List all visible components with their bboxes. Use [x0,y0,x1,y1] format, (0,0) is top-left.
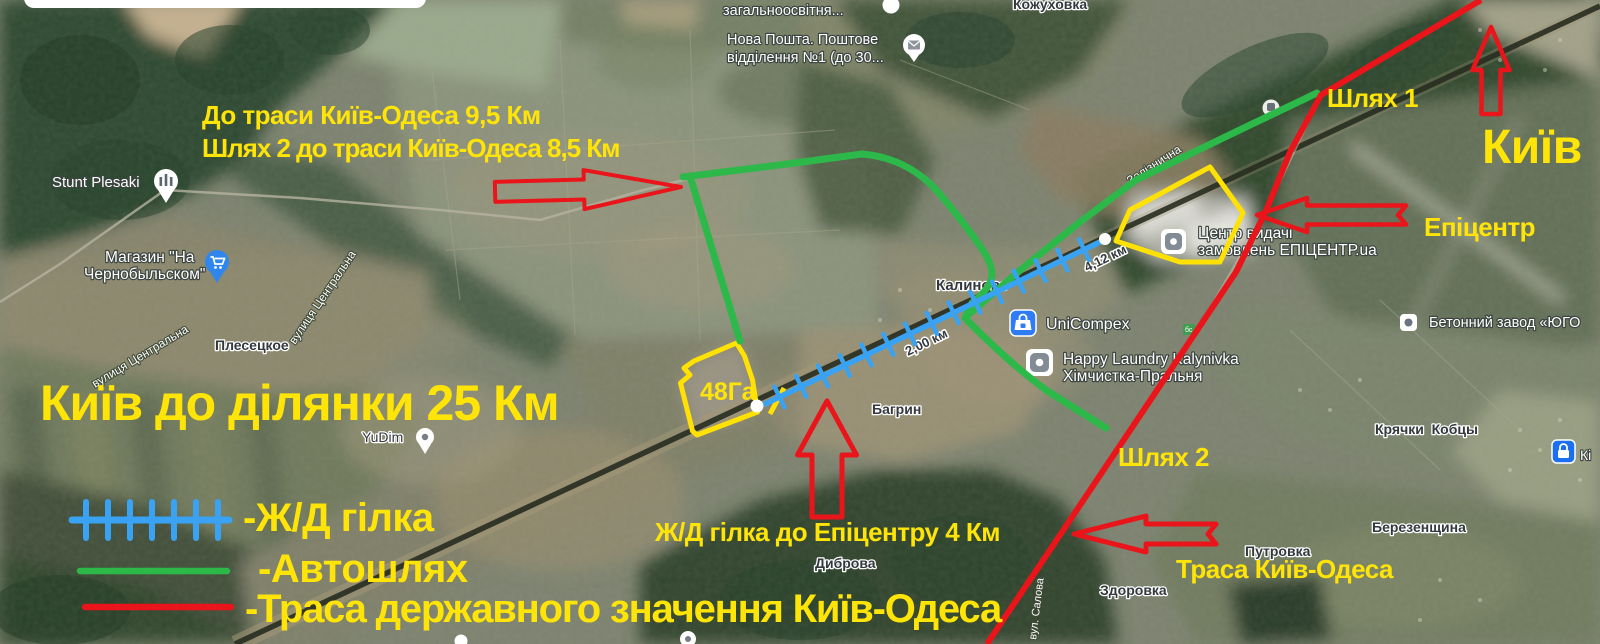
svg-text:відділення №1 (до 30...: відділення №1 (до 30... [727,50,884,66]
svg-text:Здоровка: Здоровка [1100,582,1167,598]
svg-text:Березенщина: Березенщина [1372,519,1466,535]
svg-text:До траси Київ-Одеса 9,5 Км: До траси Київ-Одеса 9,5 Км [202,100,541,130]
svg-text:Кожуховка: Кожуховка [1013,0,1087,12]
svg-text:Магазин "На: Магазин "На [105,249,195,266]
svg-text:Центр видачі: Центр видачі [1198,225,1292,242]
svg-text:бс: бс [1185,326,1193,334]
svg-text:Епіцентр: Епіцентр [1424,212,1535,242]
svg-text:загальноосвітня...: загальноосвітня... [723,3,844,19]
svg-text:Шлях 2: Шлях 2 [1118,442,1209,472]
svg-text:-Ж/Д гілка: -Ж/Д гілка [243,496,435,540]
svg-text:Happy Laundry Kalynivka: Happy Laundry Kalynivka [1063,351,1239,368]
svg-text:Нова Пошта. Поштове: Нова Пошта. Поштове [727,32,878,48]
svg-text:YuDim: YuDim [362,429,403,445]
svg-text:Траса Київ-Одеса: Траса Київ-Одеса [1176,554,1394,584]
svg-text:Stunt Plesaki: Stunt Plesaki [52,174,140,191]
svg-text:-Траса державного значення Киї: -Траса державного значення Київ-Одеса [245,587,1003,631]
svg-text:Ж/Д гілка до Епіцентру 4 Км: Ж/Д гілка до Епіцентру 4 Км [654,517,1000,547]
svg-text:Київ до ділянки 25 Км: Київ до ділянки 25 Км [40,375,559,431]
svg-text:48Га: 48Га [700,378,757,406]
svg-text:Плесецкое: Плесецкое [215,337,289,353]
svg-text:-Автошлях: -Автошлях [258,547,468,591]
svg-text:Хімчистка-Пральня: Хімчистка-Пральня [1063,368,1202,385]
svg-text:Кі: Кі [1580,447,1591,463]
svg-text:Шлях 1: Шлях 1 [1327,83,1418,113]
svg-text:Диброва: Диброва [815,555,876,571]
svg-text:Крячки Кобцы: Крячки Кобцы [1375,421,1478,437]
svg-text:Шлях 2 до траси Київ-Одеса 8,5: Шлях 2 до траси Київ-Одеса 8,5 Км [202,133,619,163]
svg-text:UniCompex: UniCompex [1046,316,1130,333]
svg-text:Бетонний завод «ЮГО: Бетонний завод «ЮГО [1429,315,1580,331]
svg-text:Київ: Київ [1482,121,1582,174]
svg-text:Чернобыльском": Чернобыльском" [84,266,205,283]
svg-text:Багрин: Багрин [872,401,921,417]
